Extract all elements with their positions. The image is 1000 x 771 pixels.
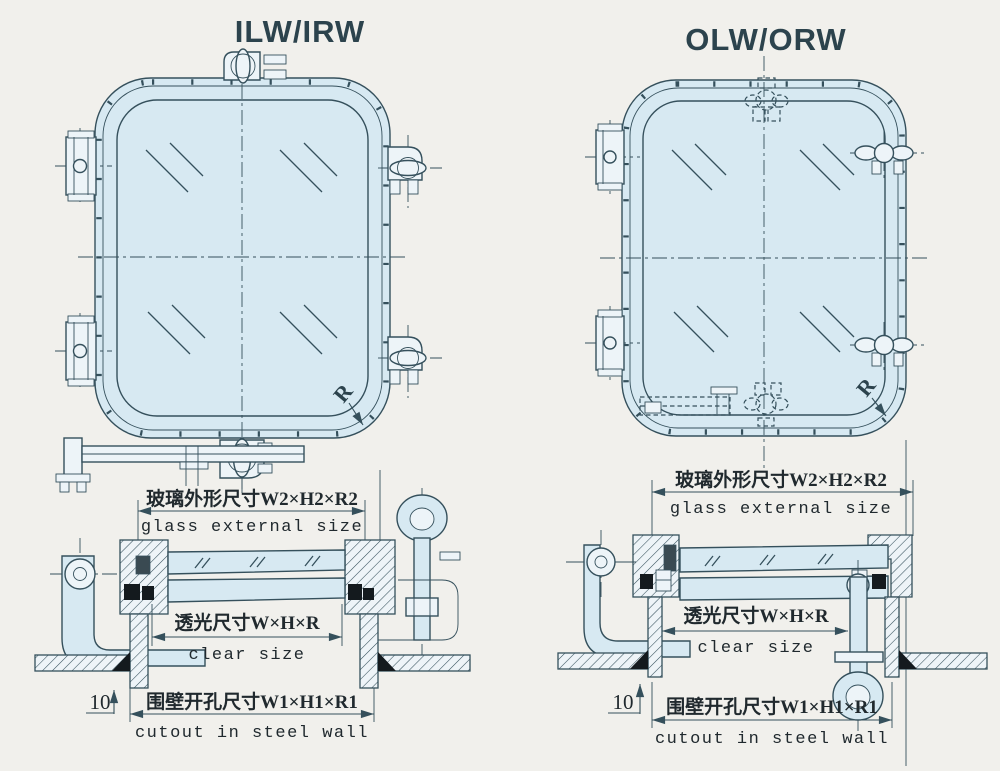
retainer-block xyxy=(656,570,671,591)
window-outer-frame xyxy=(95,78,390,438)
bolt-shaft xyxy=(850,577,867,685)
wing-nut-icon xyxy=(875,144,894,163)
glass-external-label-en: glass external size xyxy=(141,518,363,537)
wall-offset-dimension: 10 xyxy=(86,690,114,714)
hinge-pin-icon xyxy=(587,548,615,576)
wall-flange-right xyxy=(360,614,378,688)
clear-size-label-cn: 透光尺寸W×H×R xyxy=(683,604,828,627)
gasket-seal xyxy=(124,584,140,600)
bolt-shaft xyxy=(414,538,430,640)
gasket xyxy=(664,545,676,571)
wing-icon xyxy=(891,338,913,352)
drawing-canvas: ILW/IRW xyxy=(0,0,1000,771)
wall-flange-left xyxy=(130,614,148,688)
glass-external-label-cn: 玻璃外形尺寸W2×H2×R2 xyxy=(675,468,887,491)
wing-nut-icon xyxy=(875,336,894,355)
wall-offset-label: 10 xyxy=(613,690,634,714)
hinge-pin-icon xyxy=(604,151,616,163)
wall-offset-label: 10 xyxy=(90,690,111,714)
cutout-dimension: 围壁开孔尺寸W1×H1×R1 cutout in steel wall xyxy=(130,688,374,743)
toggle-bar xyxy=(835,652,883,662)
olw-orw-title: OLW/ORW xyxy=(685,22,846,57)
wing-icon xyxy=(855,146,877,160)
hinge-pin-icon xyxy=(65,559,95,589)
cutout-label-en: cutout in steel wall xyxy=(655,730,889,749)
gasket-seal xyxy=(363,588,374,600)
clear-size-label-cn: 透光尺寸W×H×R xyxy=(174,611,319,634)
gasket xyxy=(136,556,150,574)
hinge-pin-icon xyxy=(74,345,87,358)
hinge-pin-icon xyxy=(604,337,616,349)
gasket-seal xyxy=(640,574,653,589)
hinge-pin-icon xyxy=(74,160,87,173)
ilw-section-view: 玻璃外形尺寸W2×H2×R2 glass external size xyxy=(35,470,470,743)
clear-size-label-en: clear size xyxy=(188,646,305,665)
glass-external-dimension: 玻璃外形尺寸W2×H2×R2 glass external size xyxy=(652,468,913,536)
cutout-label-cn: 围壁开孔尺寸W1×H1×R1 xyxy=(666,695,878,718)
wall-flange-right xyxy=(885,597,899,677)
cutout-label-cn: 围壁开孔尺寸W1×H1×R1 xyxy=(146,690,358,713)
marine-window-technical-drawing: ILW/IRW xyxy=(0,0,1000,771)
wing-icon xyxy=(891,146,913,160)
clear-size-label-en: clear size xyxy=(697,639,814,658)
wing-icon xyxy=(855,338,877,352)
wall-offset-dimension: 10 xyxy=(608,684,640,714)
gasket-seal xyxy=(348,584,362,600)
nut xyxy=(406,598,438,616)
ilw-irw-assembly: ILW/IRW xyxy=(35,14,470,743)
frame-section-left xyxy=(120,540,168,614)
gasket-seal xyxy=(142,586,154,600)
glass-external-dimension: 玻璃外形尺寸W2×H2×R2 glass external size xyxy=(138,487,365,548)
cutout-label-en: cutout in steel wall xyxy=(135,724,369,743)
wall-flange-left xyxy=(648,597,662,677)
ilw-irw-title: ILW/IRW xyxy=(235,14,365,49)
glass-pane-outer xyxy=(168,550,345,574)
olw-section-view: 玻璃外形尺寸W2×H2×R2 glass external size xyxy=(558,440,987,766)
gasket-seal xyxy=(872,574,886,589)
glass-external-label-en: glass external size xyxy=(670,500,892,519)
clamp-handle-icon xyxy=(390,161,426,176)
clamp-handle-icon xyxy=(390,351,426,366)
ilw-front-view: R xyxy=(55,49,442,492)
glass-pane-inner xyxy=(168,578,345,602)
olw-orw-assembly: OLW/ORW xyxy=(558,22,987,766)
olw-front-view: R xyxy=(585,56,930,470)
top-clamp xyxy=(224,49,286,83)
frame-section-right xyxy=(345,540,395,614)
glass-external-label-cn: 玻璃外形尺寸W2×H2×R2 xyxy=(146,487,358,510)
